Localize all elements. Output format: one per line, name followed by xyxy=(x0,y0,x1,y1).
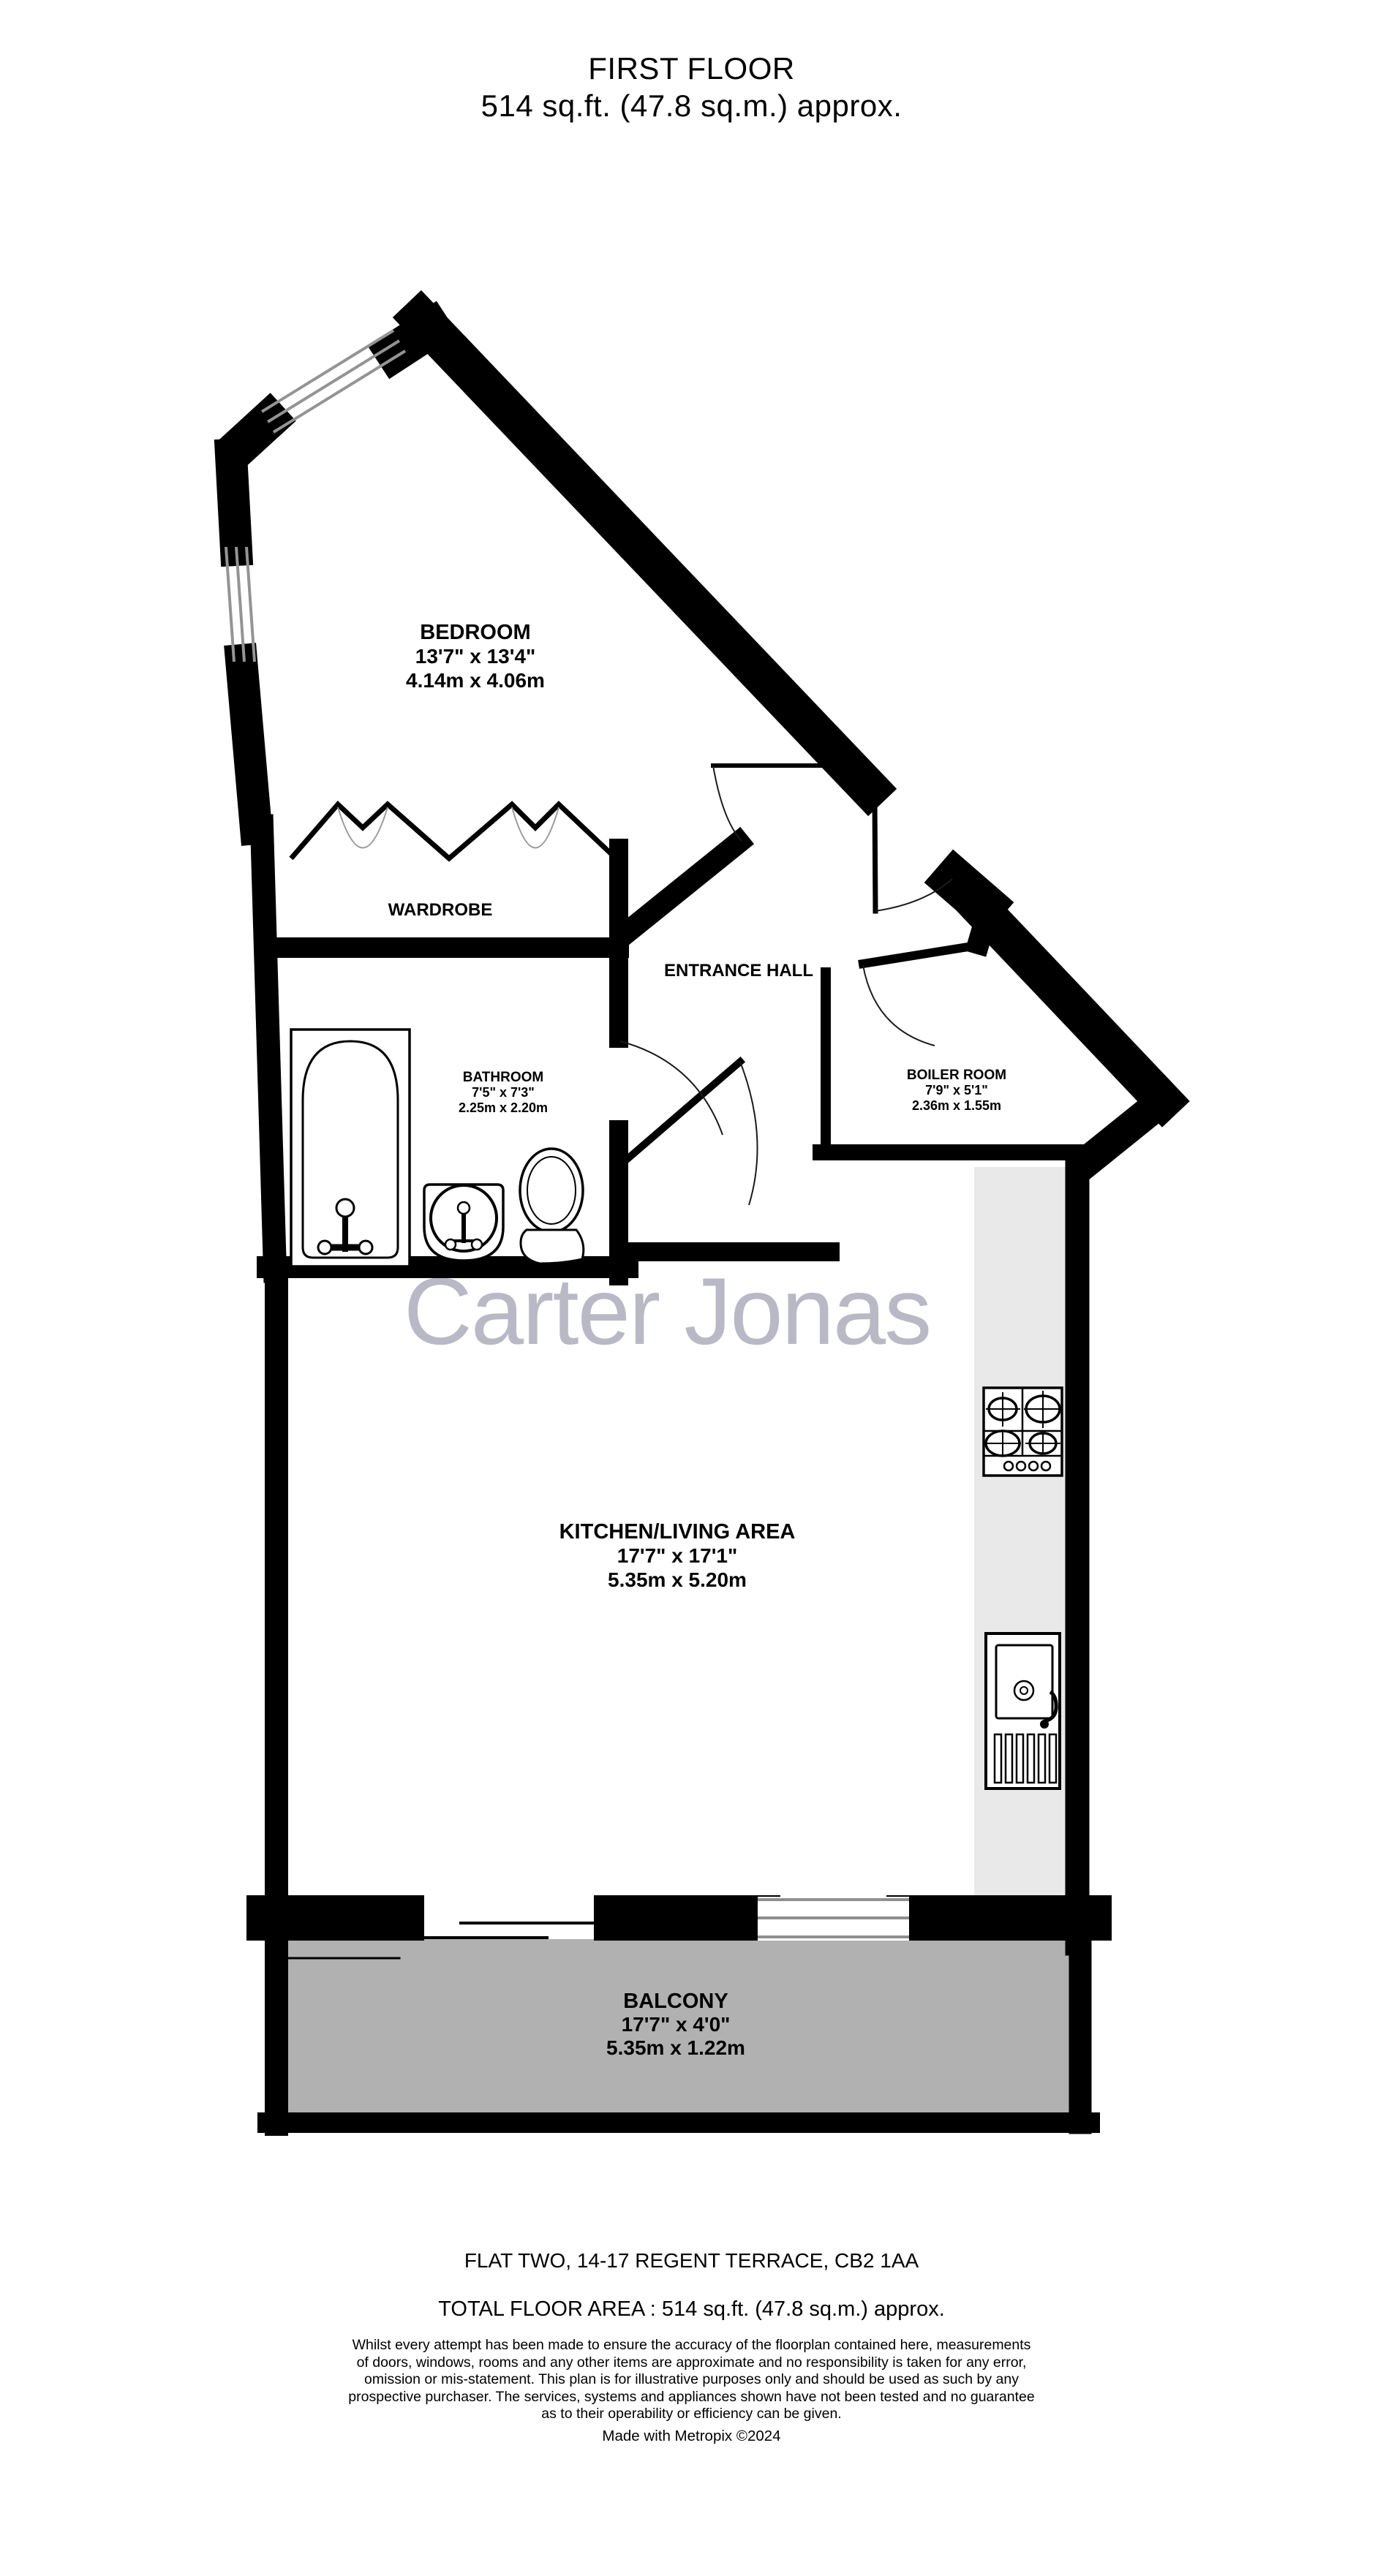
room-dims-metric: 2.25m x 2.20m xyxy=(459,1100,548,1115)
wall-segment xyxy=(625,842,739,934)
disclaimer-line: as to their operability or efficiency ca… xyxy=(0,2406,1383,2423)
door-swing-arc xyxy=(740,1062,758,1205)
disclaimer: Whilst every attempt has been made to en… xyxy=(0,2337,1383,2423)
room-label-wardrobe: WARDROBE xyxy=(388,900,493,920)
wall-corner-block xyxy=(955,880,983,904)
room-label-boiler-room: BOILER ROOM 7'9" x 5'1" 2.36m x 1.55m xyxy=(907,1068,1006,1113)
room-name: BEDROOM xyxy=(420,621,530,644)
room-dims-imperial: 7'9" x 5'1" xyxy=(925,1083,988,1098)
door-arcs xyxy=(620,766,952,1205)
room-dims-metric: 2.36m x 1.55m xyxy=(912,1098,1001,1113)
window xyxy=(758,1897,909,1941)
room-label-bathroom: BATHROOM 7'5" x 7'3" 2.25m x 2.20m xyxy=(459,1070,548,1115)
wall-segment xyxy=(241,660,256,828)
metropix-credit: Made with Metropix ©2024 xyxy=(0,2428,1383,2445)
total-floor-area: TOTAL FLOOR AREA : 514 sq.ft. (47.8 sq.m… xyxy=(0,2297,1383,2322)
area-fills xyxy=(280,1167,1079,2118)
room-dims-metric: 4.14m x 4.06m xyxy=(406,669,545,692)
boiler-door-leaf xyxy=(863,945,977,964)
room-name: BOILER ROOM xyxy=(907,1068,1006,1083)
bathroom-fixtures xyxy=(291,1030,584,1266)
disclaimer-line: prospective purchaser. The services, sys… xyxy=(0,2389,1383,2406)
wall-segment xyxy=(244,420,269,443)
wall-segment xyxy=(421,318,869,788)
door-swing-arc xyxy=(863,965,935,1046)
disclaimer-line: omission or mis-statement. This plan is … xyxy=(0,2371,1383,2389)
hob-icon xyxy=(984,1388,1062,1476)
room-label-bedroom: BEDROOM 13'7" x 13'4" 4.14m x 4.06m xyxy=(406,621,545,692)
bathtub-icon xyxy=(291,1030,410,1266)
door-jamb xyxy=(979,908,989,943)
room-name: KITCHEN/LIVING AREA xyxy=(559,1520,796,1544)
floorplan-page: { "title": { "floor": "FIRST FLOOR", "ar… xyxy=(0,0,1383,2576)
disclaimer-line: of doors, windows, rooms and any other i… xyxy=(0,2354,1383,2372)
kitchen-door-leaf xyxy=(623,1062,740,1163)
room-dims-imperial: 7'5" x 7'3" xyxy=(472,1085,535,1100)
floorplan-drawing: BEDROOM 13'7" x 13'4" 4.14m x 4.06m WARD… xyxy=(0,0,1383,2576)
kitchen-sink-icon xyxy=(986,1633,1060,1789)
room-label-entrance-hall: ENTRANCE HALL xyxy=(664,961,813,981)
room-label-balcony: BALCONY 17'7" x 4'0" 5.35m x 1.22m xyxy=(606,1990,745,2059)
room-dims-imperial: 17'7" x 4'0" xyxy=(622,2013,731,2036)
wall-segment xyxy=(231,455,236,550)
room-dims-imperial: 13'7" x 13'4" xyxy=(415,645,535,668)
wash-basin-icon xyxy=(424,1185,503,1261)
room-name: BATHROOM xyxy=(463,1070,543,1085)
front-door-leaf xyxy=(875,798,875,911)
wall-segment xyxy=(395,328,431,352)
room-dims-imperial: 17'7" x 17'1" xyxy=(617,1544,737,1567)
room-name: ENTRANCE HALL xyxy=(664,961,813,981)
wall-segment xyxy=(262,826,275,1271)
room-dims-metric: 5.35m x 5.20m xyxy=(608,1568,747,1591)
room-name: BALCONY xyxy=(623,1990,728,2013)
room-labels: BEDROOM 13'7" x 13'4" 4.14m x 4.06m WARD… xyxy=(388,621,1006,2059)
room-dims-metric: 5.35m x 1.22m xyxy=(606,2036,745,2059)
room-name: WARDROBE xyxy=(388,900,493,920)
property-address: FLAT TWO, 14-17 REGENT TERRACE, CB2 1AA xyxy=(0,2249,1383,2273)
toilet-icon xyxy=(520,1149,584,1264)
room-label-kitchen-living: KITCHEN/LIVING AREA 17'7" x 17'1" 5.35m … xyxy=(559,1520,796,1591)
disclaimer-line: Whilst every attempt has been made to en… xyxy=(0,2337,1383,2354)
wardrobe-rail-icon xyxy=(291,804,613,858)
